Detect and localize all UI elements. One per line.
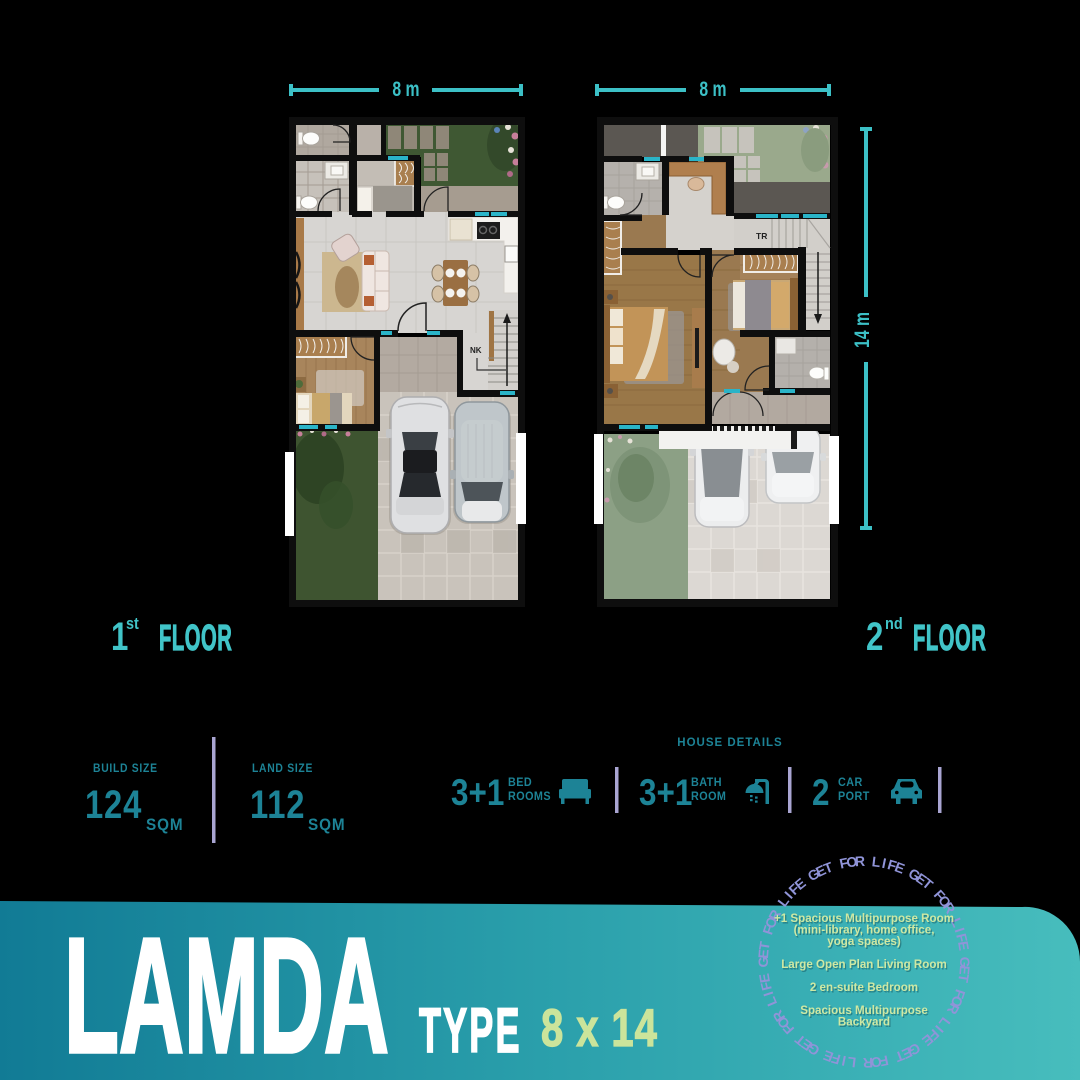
- svg-text:R: R: [855, 853, 866, 869]
- svg-text:BED: BED: [508, 777, 532, 790]
- svg-text:NK: NK: [470, 346, 482, 355]
- svg-text:PORT: PORT: [838, 791, 870, 804]
- svg-text:LAND SIZE: LAND SIZE: [252, 763, 313, 776]
- svg-text:HOUSE DETAILS: HOUSE DETAILS: [677, 737, 782, 749]
- svg-text:3+1: 3+1: [639, 773, 692, 814]
- svg-text:8 x 14: 8 x 14: [541, 997, 658, 1057]
- svg-text:112: 112: [250, 782, 305, 827]
- svg-text:2: 2: [812, 773, 829, 814]
- svg-text:LAMDA: LAMDA: [64, 904, 389, 1080]
- svg-text:R: R: [863, 1055, 874, 1071]
- svg-text:FLOOR: FLOOR: [159, 619, 232, 658]
- svg-text:TYPE: TYPE: [419, 996, 522, 1066]
- svg-text:3+1: 3+1: [451, 773, 504, 814]
- svg-text:nd: nd: [885, 615, 903, 633]
- svg-text:2 en-suite Bedroom: 2 en-suite Bedroom: [810, 981, 918, 994]
- svg-text:ROOM: ROOM: [691, 791, 726, 804]
- svg-text:BUILD SIZE: BUILD SIZE: [93, 763, 158, 776]
- svg-text:ROOMS: ROOMS: [508, 791, 551, 804]
- svg-text:CAR: CAR: [838, 777, 863, 790]
- svg-text:124: 124: [85, 782, 142, 827]
- svg-text:8 m: 8 m: [392, 77, 419, 101]
- svg-text:TR: TR: [756, 231, 767, 241]
- svg-text:Large Open Plan Living Room: Large Open Plan Living Room: [781, 958, 947, 971]
- svg-text:FLOOR: FLOOR: [913, 619, 986, 658]
- svg-text:yoga spaces): yoga spaces): [827, 935, 901, 948]
- svg-text:st: st: [126, 615, 140, 633]
- svg-text:Backyard: Backyard: [838, 1016, 890, 1029]
- svg-text:2: 2: [866, 614, 883, 659]
- svg-text:SQM: SQM: [308, 815, 346, 834]
- svg-text:SQM: SQM: [146, 815, 184, 834]
- svg-text:BATH: BATH: [691, 777, 722, 790]
- svg-text:14 m: 14 m: [850, 312, 874, 348]
- svg-text:8 m: 8 m: [699, 77, 726, 101]
